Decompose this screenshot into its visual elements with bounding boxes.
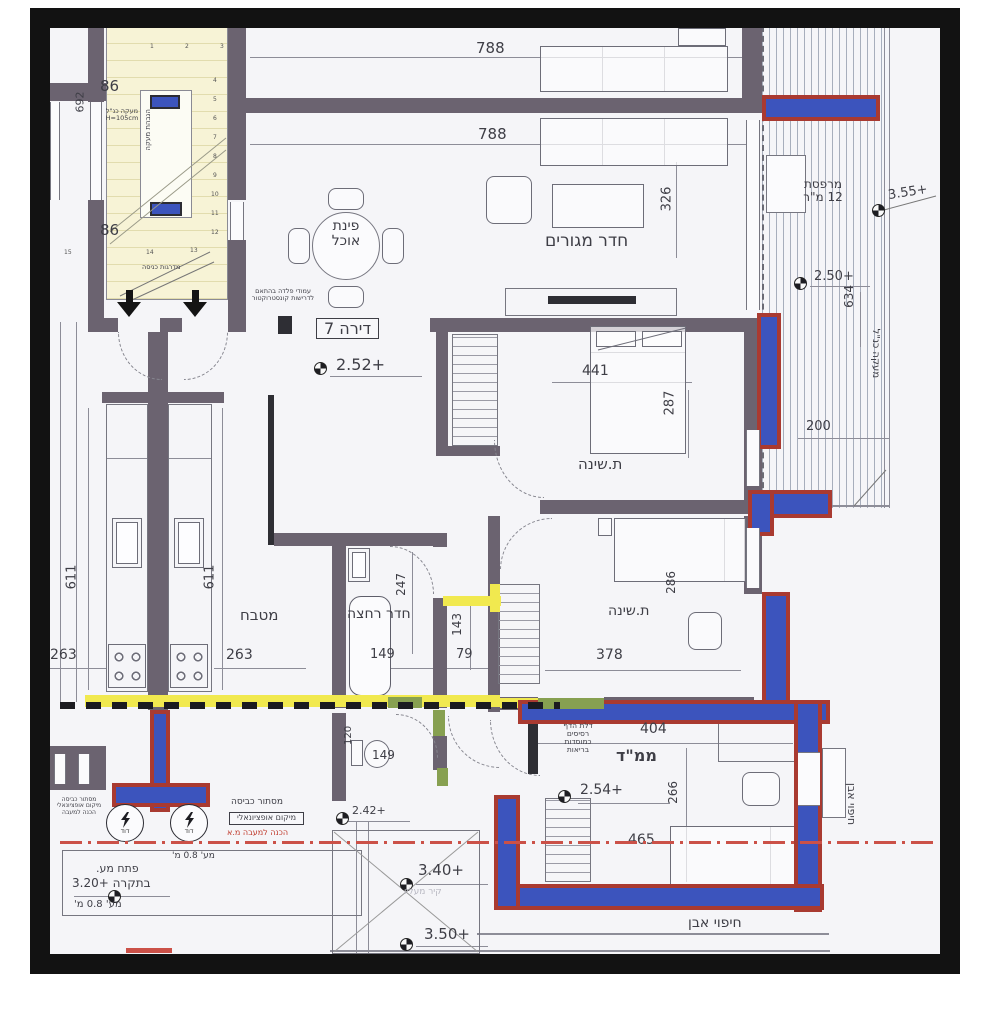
chair xyxy=(328,188,364,210)
mamad-wall xyxy=(494,884,824,910)
stair-step: 3 xyxy=(220,44,224,50)
wall-segment xyxy=(228,240,246,320)
elevation-marker xyxy=(558,790,571,803)
room-bed1: ת.שינה xyxy=(578,456,622,472)
window xyxy=(78,754,90,784)
note-blast-door: דלת הדף רסיסים כמוסדות בריאות xyxy=(546,722,610,754)
dimension-line xyxy=(578,803,670,804)
room-dining: פינת אוכל xyxy=(313,219,379,249)
stair-step: 2 xyxy=(185,44,189,50)
elevation-marker xyxy=(314,362,327,375)
dim-404: 404 xyxy=(640,722,667,737)
dim-611-right: 611 xyxy=(203,565,217,590)
cooktop xyxy=(108,644,146,688)
wall-segment xyxy=(433,598,447,708)
stair-step: 1 xyxy=(150,44,154,50)
dim-247: 247 xyxy=(395,573,408,596)
dim-287: 287 xyxy=(663,391,677,416)
window xyxy=(746,430,760,486)
dimension-line xyxy=(330,376,422,377)
railing-post xyxy=(150,95,180,109)
building-center-line xyxy=(60,841,938,844)
elev-2-52: +2.52 xyxy=(336,356,385,373)
dim-326: 326 xyxy=(660,187,674,212)
dim-263-left: 263 xyxy=(50,648,77,663)
armchair xyxy=(742,772,780,806)
column xyxy=(268,395,274,545)
cooktop xyxy=(170,644,208,688)
wall-segment xyxy=(742,22,762,98)
door-swing-arc xyxy=(396,714,438,758)
dim-200: 200 xyxy=(806,420,831,434)
frame-border xyxy=(30,8,960,28)
coffee-table xyxy=(552,184,644,228)
elev-3-20: בתקרה +3.20 xyxy=(72,877,151,890)
frame-border xyxy=(30,954,960,974)
elev-2-54: +2.54 xyxy=(580,783,623,798)
dim-149-wc: 149 xyxy=(372,749,395,762)
dim-634: 634 xyxy=(843,285,856,308)
reinforced-wall xyxy=(762,95,880,121)
dim-788-mid: 788 xyxy=(478,126,507,142)
sofa xyxy=(540,118,728,166)
window xyxy=(54,754,66,784)
kitchen-sink xyxy=(174,518,204,568)
stair-step: 4 xyxy=(213,78,217,84)
room-kitchen: מטבח xyxy=(240,607,278,623)
floorplan-scan: דוד דוד xyxy=(0,0,989,1024)
door-swing-arc xyxy=(500,518,552,570)
dim-266: 266 xyxy=(667,781,680,804)
door-jamb xyxy=(437,768,448,786)
elev-3-40: +3.40 xyxy=(418,862,464,878)
dimension-line xyxy=(688,390,689,458)
room-bed2: ת.שינה xyxy=(608,604,649,619)
dimension-line xyxy=(884,26,885,508)
mamad-wall xyxy=(794,700,822,912)
chair xyxy=(382,228,404,264)
closet xyxy=(498,584,540,684)
wall-segment xyxy=(436,446,500,456)
wall-segment xyxy=(274,533,334,546)
center-line xyxy=(126,948,172,953)
room-balcony: מרפסת 12 מ"ר xyxy=(792,178,854,204)
chair xyxy=(328,286,364,308)
dim-79: 79 xyxy=(456,648,473,662)
dimension-line xyxy=(60,322,61,702)
stair-step: 11 xyxy=(211,211,219,217)
note-guardrail-top: מע' 0.8 מ' xyxy=(172,852,215,862)
dimension-line xyxy=(810,286,870,287)
window xyxy=(746,120,760,310)
pillow xyxy=(596,331,636,347)
wall-segment xyxy=(433,533,447,547)
drawing-element xyxy=(121,812,130,828)
exit-arrow-down xyxy=(117,302,141,317)
dim-788-top: 788 xyxy=(476,40,505,56)
mamad-wall xyxy=(494,795,520,910)
wall-segment xyxy=(228,22,246,200)
water-heater-label: דוד xyxy=(185,828,194,835)
dim-441: 441 xyxy=(582,364,609,379)
door-swing-arc xyxy=(494,440,544,498)
wall-segment xyxy=(332,533,446,546)
wall-segment xyxy=(246,98,762,113)
railing-post xyxy=(150,202,182,216)
frame-border xyxy=(940,8,960,974)
stair-step: 15 xyxy=(64,250,72,256)
note-stair-strip: הגבהת מעקה xyxy=(145,109,153,151)
window xyxy=(746,528,760,588)
bed xyxy=(670,826,796,886)
wall-segment xyxy=(160,318,182,332)
note-stone-right: חיפוי אבן xyxy=(845,783,857,825)
dim-86-top: 86 xyxy=(100,78,119,94)
chair xyxy=(288,228,310,264)
closet xyxy=(452,334,498,446)
stair-step: 10 xyxy=(211,192,219,198)
stair-step: 8 xyxy=(213,154,217,160)
lightning-icon xyxy=(119,812,132,828)
wall-segment xyxy=(332,533,346,708)
dimension-line xyxy=(477,933,829,935)
dimension-line xyxy=(48,668,106,669)
frame-border xyxy=(30,8,50,974)
dim-286: 286 xyxy=(665,571,678,594)
note-laundry-left: מסתור כביסה מיקום אופציונאלי הכנה למעבה xyxy=(50,797,108,816)
note-railing-stairs: מעקה כנ"ל H=105cm xyxy=(102,108,142,122)
window xyxy=(90,102,102,200)
room-mamad: ממ"ד xyxy=(616,747,657,764)
note-railing-balcony: מעקה כנ"ל xyxy=(869,329,880,378)
floor-plan: דוד דוד xyxy=(0,0,989,1024)
sofa xyxy=(678,28,726,46)
note-ceiling-opening: פתח מע. xyxy=(96,863,139,875)
wall-segment xyxy=(88,200,104,320)
dim-120: 120 xyxy=(344,726,355,745)
elevation-marker xyxy=(794,277,807,290)
dimension-line xyxy=(214,668,306,669)
dimension-line xyxy=(76,322,77,702)
bed xyxy=(614,518,746,582)
dim-149-bath: 149 xyxy=(370,648,395,662)
door-jamb xyxy=(433,710,445,736)
kitchen-sink xyxy=(112,518,142,568)
demolition-dashed-line xyxy=(60,702,560,709)
elev-2-42: +2.42 xyxy=(352,805,386,817)
note-stone-bottom: חיפוי אבן xyxy=(688,916,742,931)
elevation-marker xyxy=(336,812,349,825)
wall-segment xyxy=(102,392,224,403)
exit-arrow-down xyxy=(183,302,207,317)
reinforced-wall xyxy=(757,313,781,449)
dim-378: 378 xyxy=(596,648,623,663)
wall-segment xyxy=(436,332,448,454)
stair-step: 12 xyxy=(211,230,219,236)
note-wall-above: קיר מעליו xyxy=(404,888,442,898)
wall-segment xyxy=(228,318,246,332)
column xyxy=(278,316,292,334)
stair-step: 9 xyxy=(213,173,217,179)
nightstand xyxy=(598,518,612,536)
dimension-line xyxy=(889,26,890,508)
dimension-line xyxy=(88,408,89,690)
drawing-element xyxy=(185,812,194,828)
dim-86-mid: 86 xyxy=(100,222,119,238)
dimension-line xyxy=(798,438,890,439)
bathroom-sink xyxy=(348,548,370,582)
apartment-box: דירה 7 xyxy=(316,318,379,339)
door-swing-arc xyxy=(118,332,162,380)
stair-step: 7 xyxy=(213,135,217,141)
stair-step: 5 xyxy=(213,97,217,103)
desk xyxy=(718,722,796,762)
water-heater: דוד xyxy=(170,804,208,842)
note-entry-stairs: מדרגות כניסה xyxy=(142,264,180,271)
dimension-line xyxy=(545,670,741,671)
elev-3-50: +3.50 xyxy=(424,926,470,942)
water-heater: דוד xyxy=(106,804,144,842)
water-heater-label: דוד xyxy=(121,828,130,835)
note-steel-columns: עמודי פלדה בהתאם לדרישות קונסטרוקטור xyxy=(240,288,326,302)
window xyxy=(230,202,244,240)
window xyxy=(50,102,60,200)
wall-segment xyxy=(148,332,168,710)
room-living: חדר מגורים xyxy=(545,232,628,250)
elevation-marker xyxy=(872,204,885,217)
dimension-line xyxy=(446,668,492,669)
elevation-marker xyxy=(400,938,413,951)
dim-692: 692 xyxy=(75,91,87,112)
dim-611-left: 611 xyxy=(65,565,79,590)
closet xyxy=(545,798,591,882)
pillow xyxy=(642,331,682,347)
dim-143: 143 xyxy=(451,613,464,636)
window xyxy=(798,752,820,806)
dim-263-right: 263 xyxy=(226,648,253,663)
outline xyxy=(822,748,846,818)
tv xyxy=(548,296,636,304)
dimension-line xyxy=(860,292,861,347)
armchair xyxy=(486,176,532,224)
wall-segment xyxy=(88,318,118,332)
elev-2-50: +2.50 xyxy=(814,270,854,284)
note-guardrail-bottom: מע' 0.8 מ' xyxy=(74,900,122,911)
stair-step: 13 xyxy=(190,248,198,254)
stair-step: 14 xyxy=(146,250,154,256)
elev-3-55: +3.55 xyxy=(887,183,929,203)
sofa xyxy=(540,46,728,92)
lightning-icon xyxy=(183,812,196,828)
dimension-line xyxy=(676,162,677,258)
dimension-line xyxy=(348,821,410,822)
door-swing-arc xyxy=(184,332,228,380)
room-bath: חדר רחצה xyxy=(347,607,411,622)
dimension-line xyxy=(222,408,223,690)
note-optional-loc: מיקום אופציונאלי xyxy=(229,812,304,825)
stair-step: 6 xyxy=(213,116,217,122)
desk-chair xyxy=(688,612,722,650)
note-condenser: הכנה למעבה מ.א xyxy=(227,829,288,838)
demolition-highlight xyxy=(490,584,500,612)
wall-segment xyxy=(540,500,762,514)
note-laundry: מסתור כביסה xyxy=(231,798,283,808)
reinforced-wall xyxy=(762,592,790,712)
